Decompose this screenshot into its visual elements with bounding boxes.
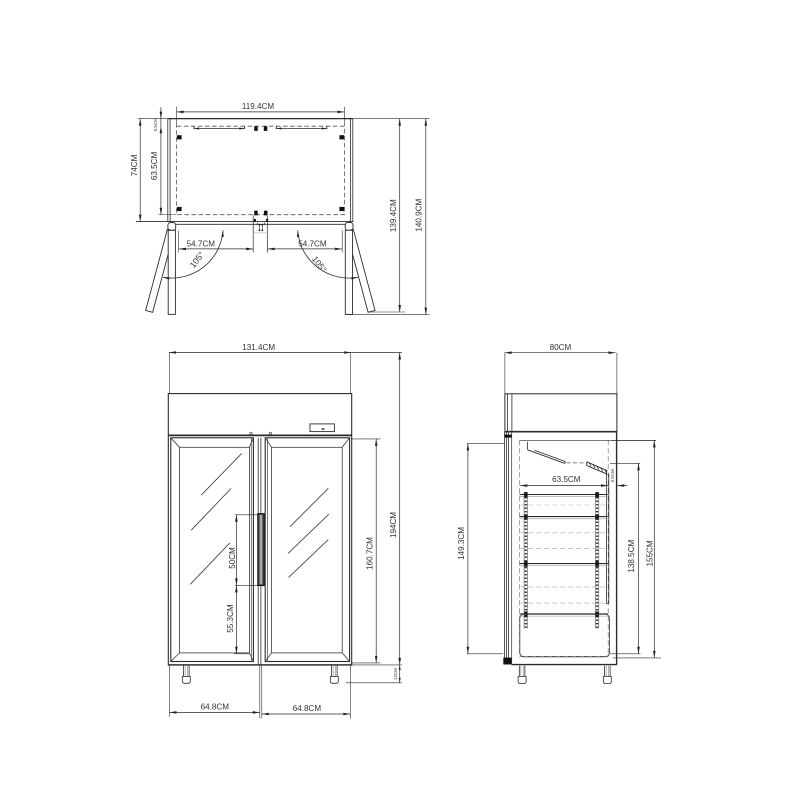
svg-text:149.3CM: 149.3CM	[457, 527, 466, 560]
svg-text:140.9CM: 140.9CM	[415, 199, 424, 232]
svg-text:5.5CM: 5.5CM	[610, 469, 615, 483]
svg-text:105°: 105°	[310, 254, 329, 274]
svg-text:194CM: 194CM	[389, 512, 398, 538]
svg-text:54.7CM: 54.7CM	[298, 240, 327, 249]
svg-text:160.7CM: 160.7CM	[366, 537, 375, 570]
svg-text:12CM: 12CM	[393, 668, 398, 680]
svg-text:119.4CM: 119.4CM	[242, 102, 274, 111]
svg-text:131.4CM: 131.4CM	[242, 343, 275, 352]
svg-text:155CM: 155CM	[645, 540, 654, 566]
svg-text:64.8CM: 64.8CM	[201, 703, 230, 712]
svg-text:50CM: 50CM	[228, 547, 237, 569]
svg-text:138.5CM: 138.5CM	[627, 540, 636, 573]
svg-text:5.5CM: 5.5CM	[153, 118, 158, 132]
svg-text:139.4CM: 139.4CM	[389, 199, 398, 232]
svg-text:74CM: 74CM	[130, 154, 139, 176]
svg-text:55.3CM: 55.3CM	[226, 604, 235, 633]
svg-text:63.5CM: 63.5CM	[150, 151, 159, 180]
svg-text:54.7CM: 54.7CM	[187, 240, 216, 249]
svg-text:80CM: 80CM	[550, 343, 572, 352]
svg-text:63.5CM: 63.5CM	[552, 475, 581, 484]
svg-text:64.8CM: 64.8CM	[293, 704, 322, 713]
